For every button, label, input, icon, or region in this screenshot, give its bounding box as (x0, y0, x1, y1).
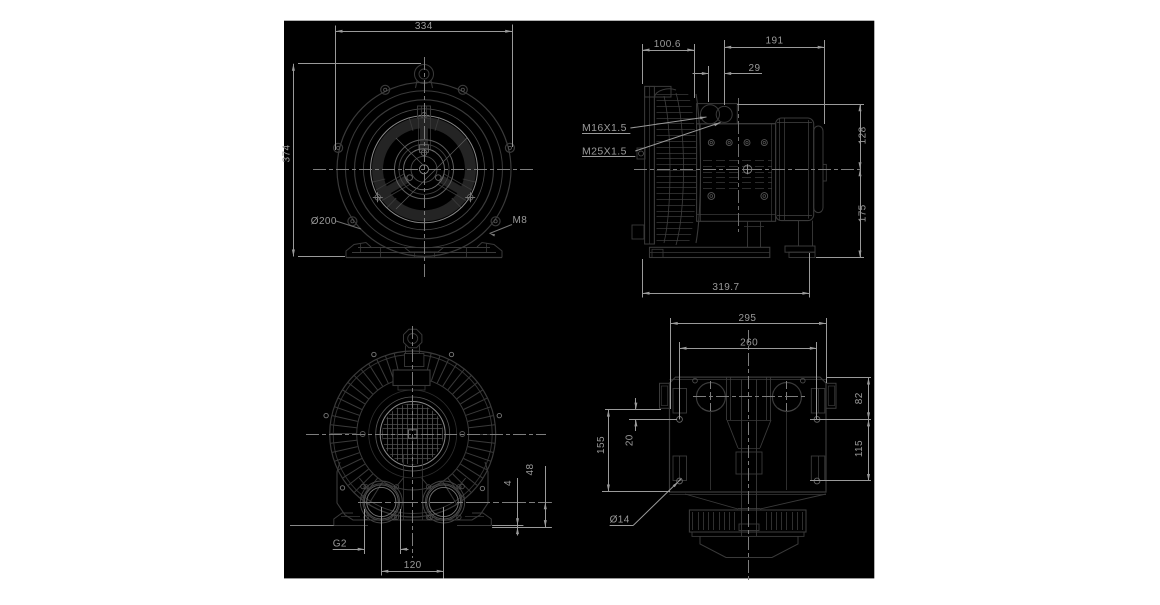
svg-text:G2: G2 (333, 539, 347, 550)
svg-text:128: 128 (858, 126, 869, 144)
svg-text:191: 191 (766, 36, 784, 47)
svg-text:175: 175 (858, 204, 869, 222)
svg-text:260: 260 (740, 337, 758, 348)
svg-text:319.7: 319.7 (712, 282, 739, 293)
svg-text:Ø200: Ø200 (311, 216, 337, 227)
svg-text:295: 295 (738, 313, 756, 324)
svg-text:20: 20 (624, 434, 635, 446)
svg-text:374: 374 (282, 145, 293, 163)
svg-text:100.6: 100.6 (654, 39, 681, 50)
svg-text:4: 4 (503, 480, 514, 486)
svg-text:Ø14: Ø14 (610, 515, 630, 526)
svg-text:155: 155 (596, 436, 607, 454)
svg-text:M25X1.5: M25X1.5 (582, 146, 627, 158)
svg-text:29: 29 (749, 63, 761, 74)
svg-text:M16X1.5: M16X1.5 (582, 122, 627, 134)
svg-text:334: 334 (415, 21, 433, 32)
svg-text:M8: M8 (513, 215, 528, 226)
svg-text:48: 48 (525, 464, 536, 476)
svg-text:115: 115 (854, 440, 865, 457)
svg-text:82: 82 (854, 392, 865, 404)
svg-text:120: 120 (404, 560, 422, 571)
